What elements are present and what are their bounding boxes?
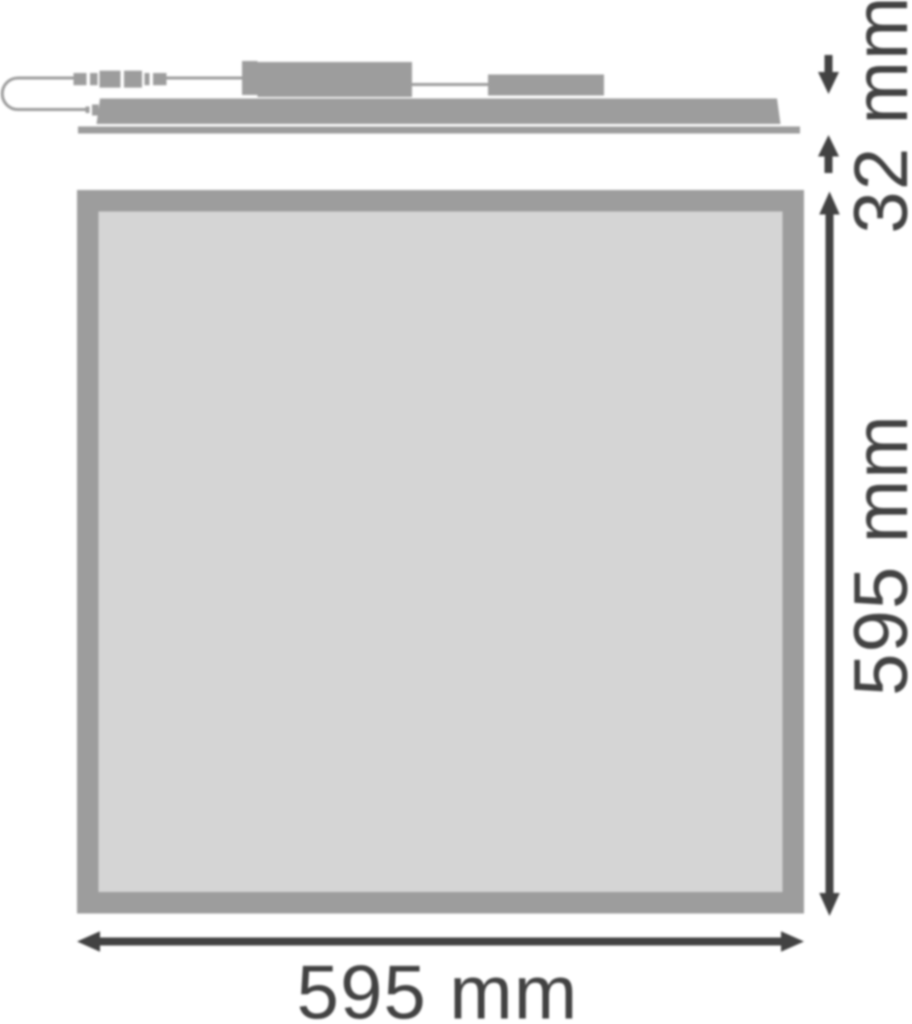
svg-text:595 mm: 595 mm	[297, 951, 579, 1024]
svg-text:32 mm: 32 mm	[839, 0, 912, 234]
svg-text:595 mm: 595 mm	[839, 414, 912, 696]
